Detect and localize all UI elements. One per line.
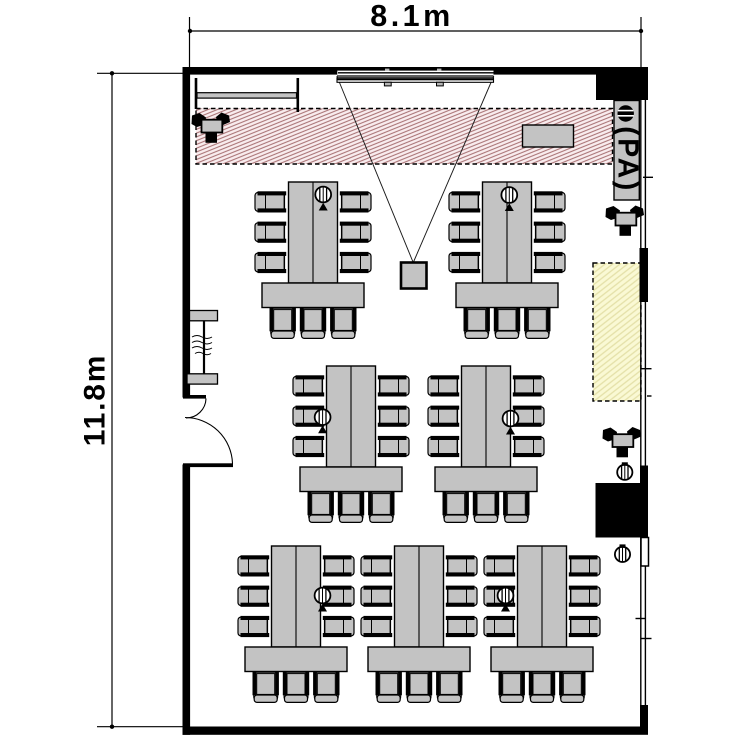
svg-text:8.1m: 8.1m xyxy=(370,0,454,33)
svg-text:(PA): (PA) xyxy=(612,126,644,192)
svg-text:11.8m: 11.8m xyxy=(79,354,112,446)
